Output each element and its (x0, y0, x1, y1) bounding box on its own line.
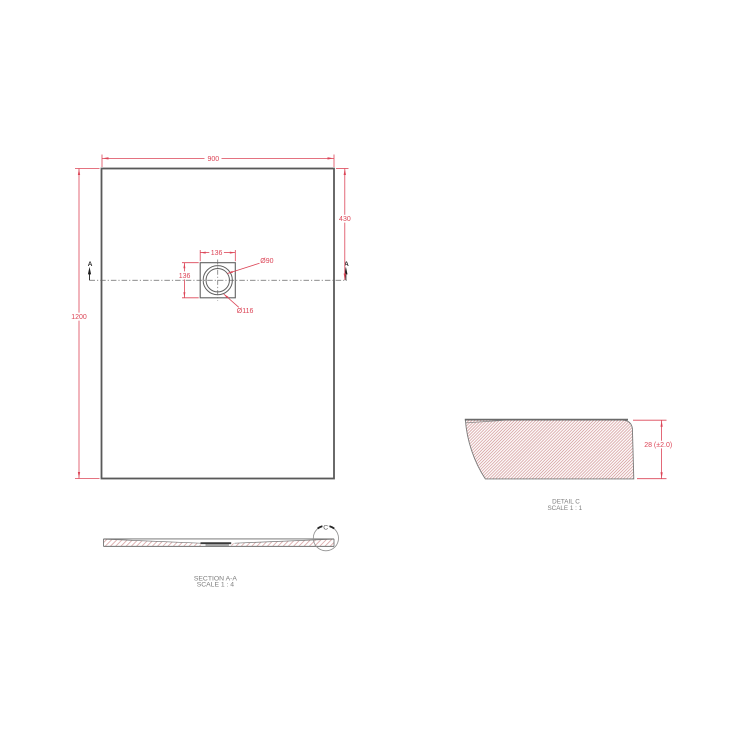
svg-text:SCALE 1 : 1: SCALE 1 : 1 (547, 505, 582, 512)
svg-text:Ø90: Ø90 (260, 258, 273, 265)
svg-text:136: 136 (179, 273, 191, 280)
svg-text:28 (±2.0): 28 (±2.0) (644, 442, 672, 449)
svg-text:1200: 1200 (71, 314, 87, 321)
svg-text:136: 136 (211, 250, 223, 257)
svg-text:Ø116: Ø116 (237, 308, 254, 315)
svg-text:900: 900 (207, 156, 219, 163)
svg-text:C: C (323, 524, 328, 531)
svg-text:SCALE 1 : 4: SCALE 1 : 4 (197, 581, 235, 588)
svg-text:430: 430 (339, 216, 351, 223)
svg-text:A: A (88, 261, 93, 268)
